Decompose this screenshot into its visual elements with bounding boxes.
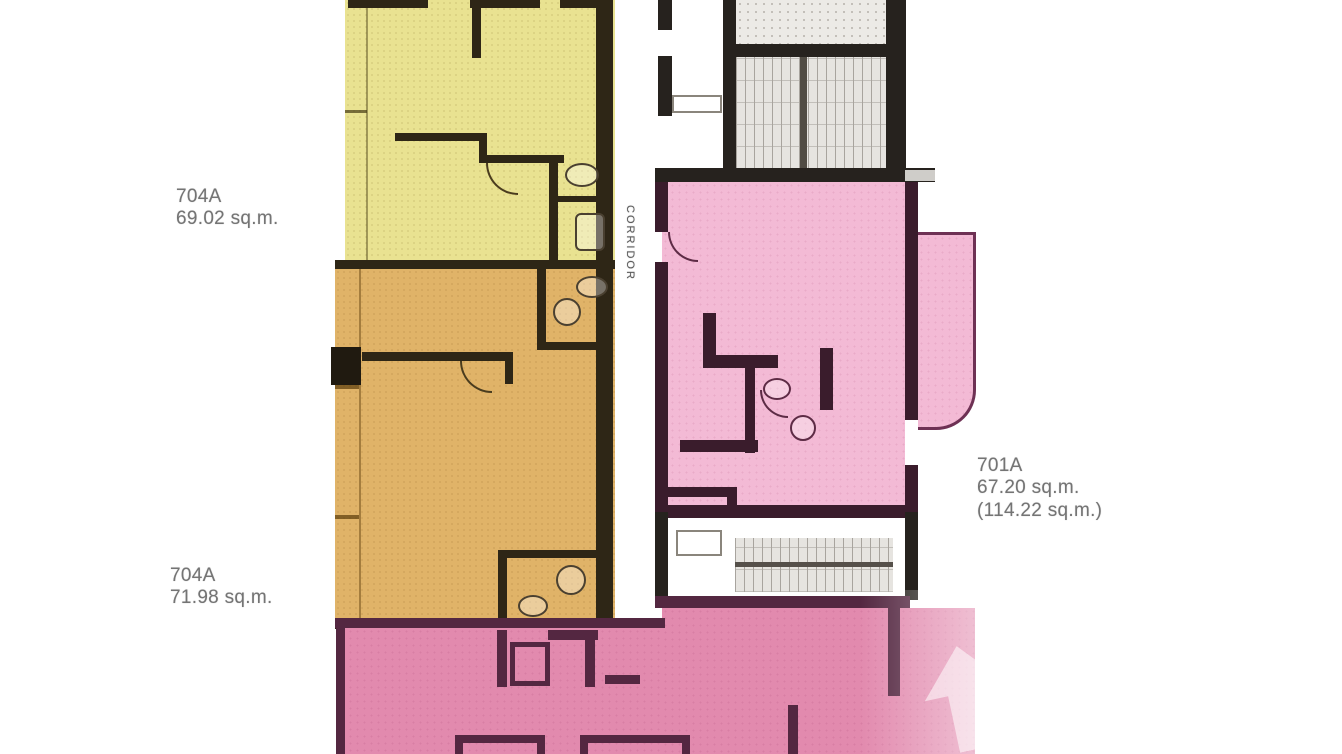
unit-number: 704A xyxy=(176,186,279,208)
wall xyxy=(455,735,463,754)
wall xyxy=(580,735,690,743)
wall xyxy=(455,735,545,743)
wall xyxy=(655,262,668,512)
wall-core xyxy=(723,44,886,57)
unit-label-704a-top: 704A 69.02 sq.m. xyxy=(176,186,279,231)
wall xyxy=(605,675,640,684)
stair-divider xyxy=(735,562,893,567)
unit-number: 704A xyxy=(170,565,273,587)
unit-label-704a-bottom: 704A 71.98 sq.m. xyxy=(170,565,273,610)
lobby-fixture xyxy=(672,95,722,113)
floor-plan: CORRIDOR xyxy=(0,0,1342,754)
wall xyxy=(655,512,668,600)
stairwell xyxy=(736,57,886,169)
unit-area: 67.20 sq.m. xyxy=(977,477,1102,499)
sink-fixture xyxy=(790,415,816,441)
sink-fixture xyxy=(553,298,581,326)
wall-core xyxy=(886,0,906,170)
ledge-divider xyxy=(335,515,359,519)
wall-core xyxy=(723,0,736,168)
balcony xyxy=(918,232,976,430)
wall xyxy=(537,735,545,754)
shower-enclosure xyxy=(510,642,550,686)
wall xyxy=(655,505,918,518)
lift-shaft xyxy=(736,0,886,44)
wall xyxy=(905,182,918,420)
sink-fixture xyxy=(575,213,605,251)
wall xyxy=(348,0,428,8)
wall-core xyxy=(655,168,935,182)
ledge-divider xyxy=(335,385,359,389)
wall xyxy=(472,0,481,58)
wall-bathroom xyxy=(549,196,613,202)
sink-fixture xyxy=(556,565,586,595)
wall xyxy=(362,352,512,361)
structural-column xyxy=(331,347,361,385)
unit-number: 701A xyxy=(977,455,1102,477)
wall xyxy=(580,735,588,754)
wall xyxy=(585,630,595,687)
corridor-label: CORRIDOR xyxy=(624,205,636,340)
wall-corridor-side xyxy=(596,269,613,625)
wall xyxy=(655,182,668,232)
unit-area: 71.98 sq.m. xyxy=(170,587,273,609)
wall-bathroom xyxy=(820,348,833,410)
toilet-fixture xyxy=(576,276,608,298)
watermark-fade xyxy=(860,590,1342,754)
wall xyxy=(336,618,345,754)
wall xyxy=(680,440,758,452)
wall xyxy=(788,705,798,754)
wall-bathroom xyxy=(498,550,613,558)
lobby-fixture xyxy=(676,530,722,556)
wall xyxy=(682,735,690,754)
wall-bathroom xyxy=(537,342,613,350)
wall xyxy=(497,630,507,687)
toilet-fixture xyxy=(565,163,599,187)
unit-701a-fill xyxy=(662,182,905,512)
wall xyxy=(703,355,778,368)
wall xyxy=(658,56,672,116)
wall xyxy=(395,133,487,141)
wall xyxy=(905,512,918,600)
wall xyxy=(727,487,737,512)
wall xyxy=(658,0,672,30)
wall-ledge xyxy=(905,170,935,181)
wall-unit-divider xyxy=(335,260,615,269)
wall-bathroom xyxy=(498,550,507,625)
wall xyxy=(335,618,665,628)
wall-bathroom xyxy=(549,155,558,268)
stair-divider xyxy=(800,57,807,169)
wall-bathroom xyxy=(537,269,546,349)
wall xyxy=(662,487,732,497)
unit-area-total: (114.22 sq.m.) xyxy=(977,500,1102,522)
balcony-ledge-line xyxy=(366,0,368,260)
unit-label-701a: 701A 67.20 sq.m. (114.22 sq.m.) xyxy=(977,455,1102,522)
wall xyxy=(505,352,513,384)
toilet-fixture xyxy=(518,595,548,617)
ledge-divider xyxy=(345,110,367,113)
balcony-ledge-line xyxy=(359,269,361,625)
unit-area: 69.02 sq.m. xyxy=(176,208,279,230)
